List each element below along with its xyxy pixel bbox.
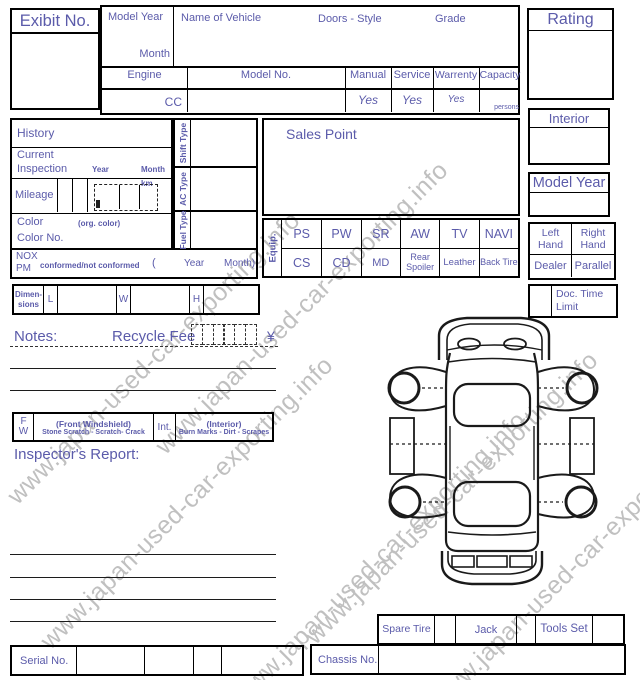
right-hand-cell[interactable]: Right Hand <box>572 224 614 254</box>
model-year-box-label: Model Year <box>530 174 608 193</box>
width-label: W <box>117 286 131 313</box>
front-windshield-cell: (Front Windshield) Stone Scratch - Scrat… <box>34 414 154 440</box>
chassis-no-field[interactable] <box>379 646 624 673</box>
equip-cell-md[interactable]: MD <box>361 248 400 276</box>
mileage-row[interactable]: Mileage km <box>12 179 171 214</box>
warrenty-label: Warrenty <box>433 69 479 81</box>
equip-cell-ps[interactable]: PS <box>282 220 321 248</box>
jack-label: Jack <box>456 616 517 643</box>
divider <box>139 185 140 209</box>
equip-cell-rear-spoiler[interactable]: Rear Spoiler <box>400 248 439 276</box>
model-year-field[interactable] <box>530 193 608 215</box>
grade-label: Grade <box>435 13 466 25</box>
serial-no-label: Serial No. <box>12 647 77 674</box>
interior-field[interactable] <box>530 128 608 163</box>
conformed-label: conformed/not conformed <box>40 261 140 270</box>
exhibit-no-field[interactable] <box>12 34 98 110</box>
shift-type-field[interactable] <box>191 120 256 166</box>
notes-line[interactable] <box>10 368 276 369</box>
watermark-text: www.japan-used-car-exporting.info <box>35 351 339 655</box>
report-line[interactable] <box>10 554 276 555</box>
fw-label: F W <box>14 414 34 440</box>
cc-label: CC <box>102 95 182 109</box>
color-row: Color (org. color) Color No. <box>12 214 171 247</box>
equip-cell-sr[interactable]: SR <box>361 220 400 248</box>
tools-set-label: Tools Set <box>536 616 593 643</box>
equip-cell-tv[interactable]: TV <box>439 220 478 248</box>
nox-pm-row: NOX PM conformed/not conformed ( Year Mo… <box>10 248 258 279</box>
divider <box>173 7 174 66</box>
int-label: Int. <box>154 414 176 440</box>
current-inspection-label: Current Inspection <box>17 149 89 177</box>
equip-cell-aw[interactable]: AW <box>400 220 439 248</box>
height-label: H <box>190 286 204 313</box>
front-windshield-label: (Front Windshield) <box>56 419 131 429</box>
manual-label: Manual <box>345 69 391 81</box>
serial-no-field[interactable] <box>194 647 222 674</box>
length-label: L <box>44 286 58 313</box>
equip-cell-back-tire[interactable]: Back Tire <box>479 248 518 276</box>
odometer-box <box>94 184 158 211</box>
dimensions-label: Dimen- sions <box>14 286 44 313</box>
warrenty-value[interactable]: Yes <box>433 94 479 105</box>
interior-condition-sub: Burn Marks - Dirt - Scrapes <box>179 429 269 436</box>
paren-open: ( <box>152 257 156 269</box>
divider <box>119 185 120 209</box>
serial-no-field[interactable] <box>222 647 302 674</box>
nox-month-label: Month) <box>224 258 255 269</box>
fw-label-w: W <box>19 427 28 438</box>
divider <box>57 179 58 212</box>
interior-label: Interior <box>530 110 608 128</box>
model-no-label: Model No. <box>187 69 345 81</box>
fuel-type-box: Fuel Type <box>173 210 258 250</box>
serial-no-field[interactable] <box>77 647 145 674</box>
shift-type-box: Shift Type <box>173 118 258 168</box>
engine-label: Engine <box>102 69 187 81</box>
ac-type-field[interactable] <box>191 168 256 210</box>
dimensions-label-line1: Dimen- <box>15 290 42 299</box>
equipment-grid: PS PW SR AW TV NAVI CS CD MD Rear Spoile… <box>282 220 518 276</box>
equip-cell-leather[interactable]: Leather <box>439 248 478 276</box>
car-top-view-diagram <box>346 310 640 602</box>
persons-label: persons <box>479 104 519 111</box>
equip-cell-pw[interactable]: PW <box>321 220 360 248</box>
yen-symbol: ¥ <box>267 328 275 344</box>
equip-cell-cd[interactable]: CD <box>321 248 360 276</box>
recycle-fee-boxes[interactable] <box>191 324 257 345</box>
ac-type-label: AC Type <box>178 172 188 206</box>
tools-table: Spare Tire Jack Tools Set <box>377 614 625 645</box>
vehicle-header-box: Model Year Month Name of Vehicle Doors -… <box>100 5 520 115</box>
mileage-label: Mileage <box>15 189 54 201</box>
spare-tire-label: Spare Tire <box>379 616 435 643</box>
notes-dashed-line <box>10 346 278 347</box>
color-label: Color <box>17 216 43 228</box>
sales-point-label: Sales Point <box>264 120 518 142</box>
inspector-report-label: Inspector's Report: <box>14 446 139 463</box>
nox-year-label: Year <box>184 258 204 269</box>
condition-table: F W (Front Windshield) Stone Scratch - S… <box>12 412 274 442</box>
month-label: Month <box>141 165 165 174</box>
interior-condition-label: (Interior) <box>207 419 242 429</box>
service-value[interactable]: Yes <box>391 93 433 107</box>
model-year-box: Model Year <box>528 172 610 217</box>
length-field[interactable] <box>58 286 117 313</box>
report-line[interactable] <box>10 599 276 600</box>
rating-field[interactable] <box>529 31 612 97</box>
dimensions-box: Dimen- sions L W H <box>12 284 260 315</box>
divider <box>72 179 73 212</box>
divider <box>102 88 518 90</box>
manual-value[interactable]: Yes <box>345 93 391 107</box>
history-label: History <box>12 120 171 148</box>
equip-cell-navi[interactable]: NAVI <box>479 220 518 248</box>
jack-field[interactable] <box>517 616 536 643</box>
history-box: History Current Inspection Year Month Mi… <box>10 118 173 250</box>
doors-style-label: Doors - Style <box>318 13 382 25</box>
fuel-type-field[interactable] <box>191 212 256 248</box>
pm-label: PM <box>16 263 31 274</box>
color-no-label: Color No. <box>17 232 63 244</box>
divider <box>102 66 518 68</box>
tools-set-field[interactable] <box>593 616 623 643</box>
name-of-vehicle-label: Name of Vehicle <box>181 12 261 24</box>
hand-dealer-table: Left Hand Right Hand Dealer Parallel <box>528 222 616 280</box>
divider <box>87 179 88 212</box>
fuel-type-label: Fuel Type <box>178 210 188 249</box>
width-field[interactable] <box>131 286 190 313</box>
sales-point-box[interactable]: Sales Point <box>262 118 520 216</box>
equipment-table: Equip. PS PW SR AW TV NAVI CS CD MD Rear… <box>262 218 520 278</box>
month-label: Month <box>128 48 170 60</box>
rating-box: Rating <box>527 8 614 100</box>
service-label: Service <box>391 69 433 81</box>
notes-line[interactable] <box>10 390 276 391</box>
year-label: Year <box>92 165 109 174</box>
report-line[interactable] <box>10 577 276 578</box>
shift-type-label: Shift Type <box>178 123 188 163</box>
recycle-fee-label: Recycle Fee <box>112 328 195 345</box>
nox-label: NOX <box>16 251 38 262</box>
notes-label: Notes: <box>14 328 57 345</box>
exhibit-no-box: Exibit No. <box>10 8 100 110</box>
model-year-label: Model Year <box>108 11 163 23</box>
serial-no-row: Serial No. <box>10 645 304 676</box>
equip-cell-cs[interactable]: CS <box>282 248 321 276</box>
front-windshield-sub: Stone Scratch - Scratch- Crack <box>42 429 145 436</box>
dealer-cell[interactable]: Dealer <box>530 255 572 277</box>
report-line[interactable] <box>10 621 276 622</box>
serial-no-field[interactable] <box>145 647 194 674</box>
exhibit-no-label: Exibit No. <box>12 10 98 34</box>
height-field[interactable] <box>204 286 258 313</box>
capacity-label: Capacity <box>479 69 521 81</box>
current-inspection-row: Current Inspection Year Month <box>12 148 171 179</box>
car-diagram-svg <box>346 310 640 602</box>
odometer-mark <box>96 200 100 208</box>
dimensions-label-line2: sions <box>18 300 39 309</box>
ac-type-box: AC Type <box>173 166 258 212</box>
equipment-label: Equip. <box>267 233 278 262</box>
interior-box: Interior <box>528 108 610 165</box>
interior-condition-cell: (Interior) Burn Marks - Dirt - Scrapes <box>176 414 272 440</box>
recycle-fee-digit[interactable] <box>245 324 257 345</box>
parallel-cell[interactable]: Parallel <box>572 255 614 277</box>
auction-sheet: www.japan-used-car-exporting.info www.ja… <box>0 0 640 680</box>
rating-label: Rating <box>529 10 612 31</box>
chassis-no-label: Chassis No. <box>312 646 379 673</box>
org-color-label: (org. color) <box>78 219 120 228</box>
left-hand-cell[interactable]: Left Hand <box>530 224 572 254</box>
chassis-no-row: Chassis No. <box>310 644 626 675</box>
spare-tire-field[interactable] <box>435 616 456 643</box>
